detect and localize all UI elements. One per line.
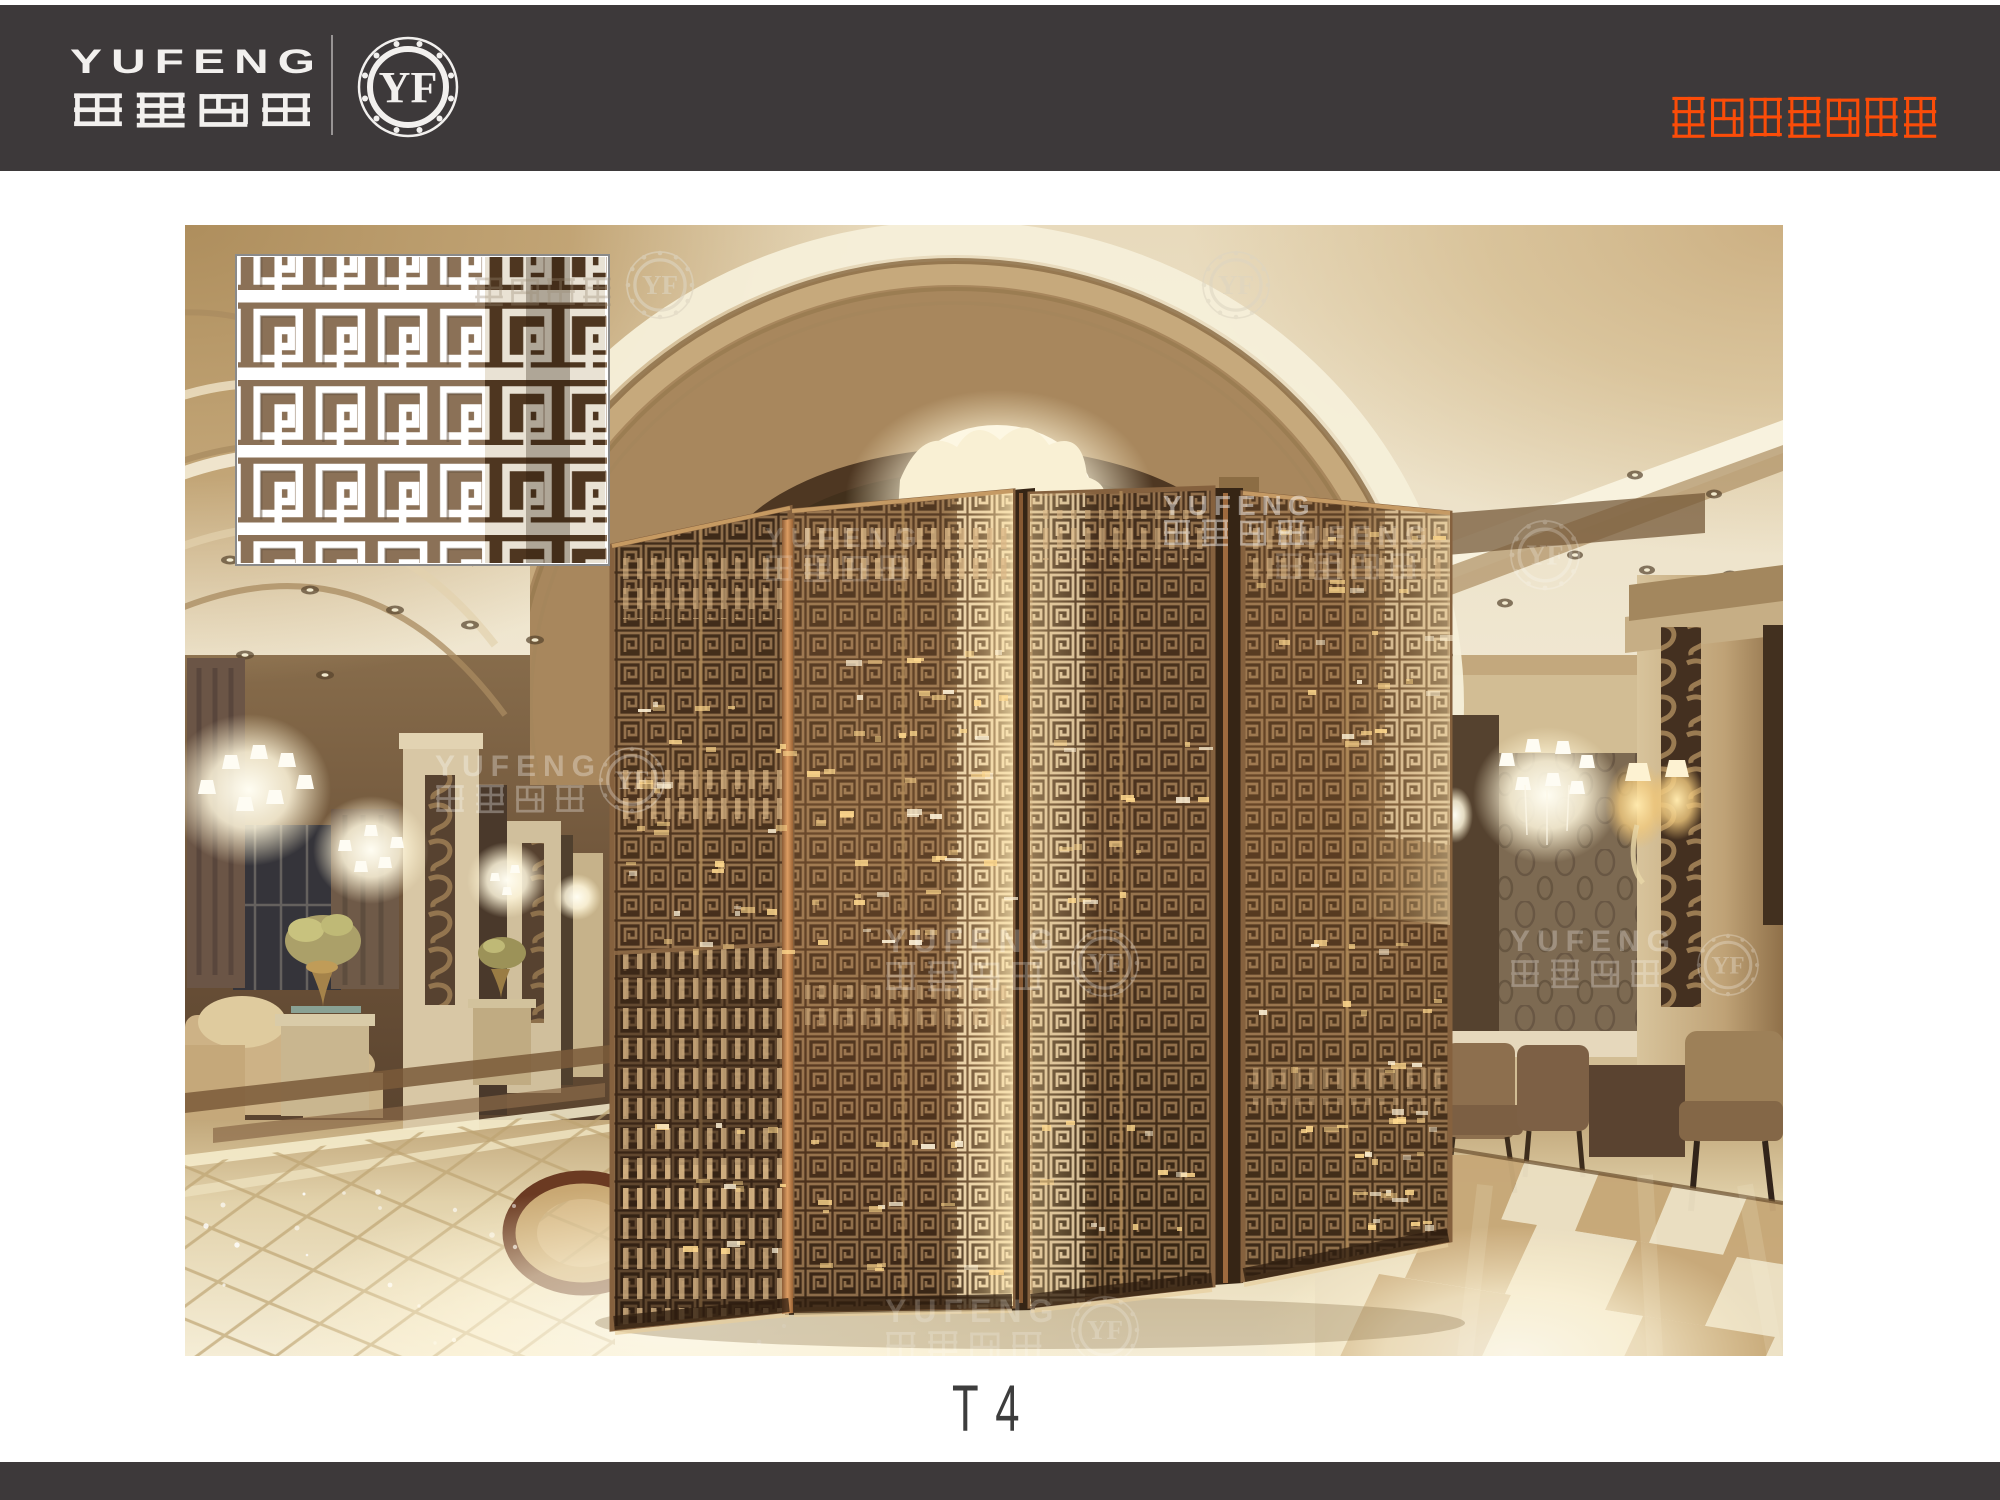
svg-text:YUFENG: YUFENG [885, 923, 1060, 959]
svg-text:YUFENG: YUFENG [435, 750, 602, 783]
svg-text:YF: YF [1711, 952, 1744, 979]
svg-text:YUFENG: YUFENG [1275, 520, 1434, 551]
svg-text:YUFENG: YUFENG [1510, 925, 1677, 958]
svg-text:YF: YF [1526, 541, 1563, 572]
svg-text:YUFENG: YUFENG [765, 522, 924, 553]
svg-text:YF: YF [642, 270, 678, 300]
svg-text:YF: YF [615, 766, 650, 795]
svg-text:YUFENG: YUFENG [1163, 490, 1316, 521]
svg-text:YF: YF [1087, 1315, 1123, 1345]
svg-text:YF: YF [1087, 948, 1123, 978]
svg-text:YF: YF [379, 63, 438, 112]
svg-text:YUFENG: YUFENG [885, 1293, 1060, 1329]
svg-text:YF: YF [1218, 270, 1254, 300]
